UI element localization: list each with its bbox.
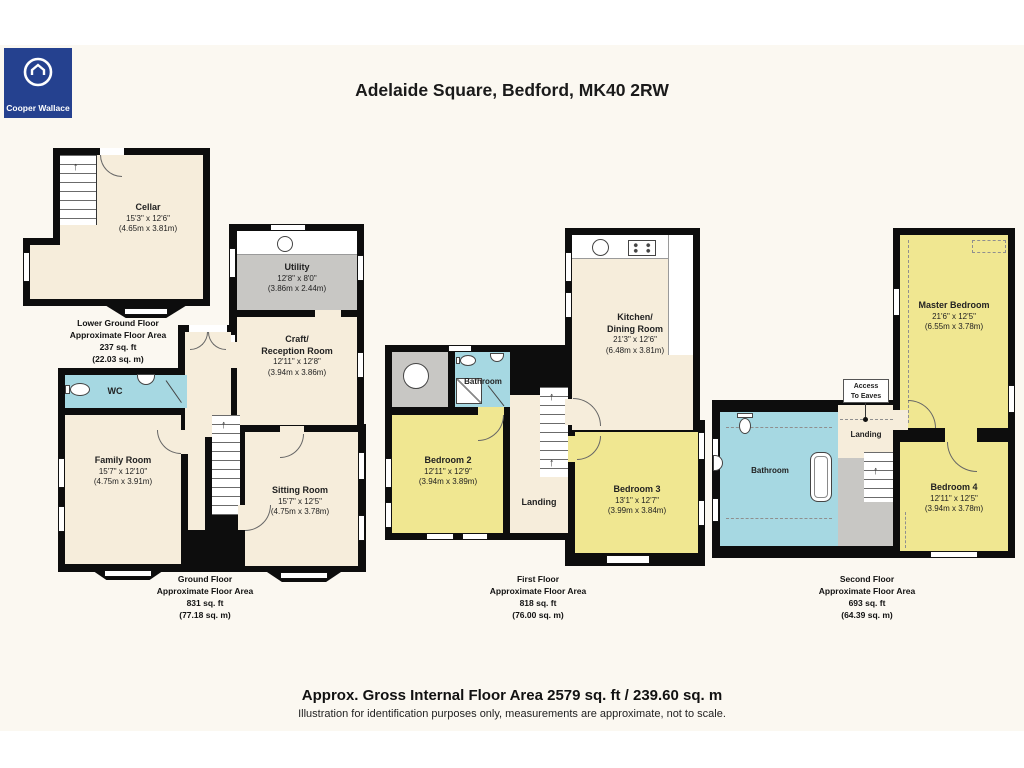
door-opening <box>945 428 977 442</box>
door-opening <box>229 342 237 368</box>
room-label-utility: Utility 12'8" x 8'0" (3.86m x 2.44m) <box>237 262 357 294</box>
room-label-family: Family Room 15'7" x 12'10" (4.75m x 3.91… <box>66 455 180 487</box>
door-opening <box>280 426 304 434</box>
window-icon <box>462 533 488 540</box>
toilet-cistern <box>65 385 70 394</box>
bathtub-icon <box>810 452 832 502</box>
window-icon <box>23 252 30 282</box>
door-opening <box>893 410 908 430</box>
window-icon <box>270 224 306 231</box>
door-opening <box>565 399 573 425</box>
room-label-bedroom-4: Bedroom 4 12'11" x 12'5" (3.94m x 3.78m) <box>898 482 1010 514</box>
disclaimer-text: Illustration for identification purposes… <box>0 708 1024 720</box>
door-opening <box>568 436 575 462</box>
access-to-eaves-label: Access To Eaves <box>843 379 889 403</box>
room-label-bedroom-2: Bedroom 2 12'11" x 12'9" (3.94m x 3.89m) <box>390 455 506 487</box>
window-icon <box>58 458 65 488</box>
room-label-master: Master Bedroom 21'6" x 12'5" (6.55m x 3.… <box>896 300 1012 332</box>
toilet-icon <box>70 383 90 396</box>
stairs-icon <box>864 452 893 502</box>
room-label-bedroom-3: Bedroom 3 13'1" x 12'7" (3.99m x 3.84m) <box>577 484 697 516</box>
stairs-arrow-icon: ↑ <box>221 420 227 431</box>
window-icon <box>1008 385 1015 413</box>
door-opening <box>181 430 188 454</box>
window-icon <box>124 308 168 315</box>
door-opening <box>315 310 341 317</box>
agency-logo-text: Cooper Wallace <box>4 103 72 113</box>
room-label-cellar: Cellar 15'3" x 12'6" (4.65m x 3.81m) <box>88 202 208 234</box>
room-label-wc: WC <box>95 386 135 398</box>
eaves-dashed-line <box>905 512 906 548</box>
room-label-landing-2: Landing <box>836 430 896 440</box>
access-point-dot <box>863 417 868 422</box>
floor-area-label-first: First Floor Approximate Floor Area 818 s… <box>468 574 608 622</box>
room-label-craft: Craft/ Reception Room 12'11" x 12'8" (3.… <box>237 334 357 378</box>
window-icon <box>357 352 364 378</box>
eaves-dashed-box <box>972 240 1006 253</box>
room-label-landing: Landing <box>508 497 570 509</box>
door-opening <box>100 148 124 155</box>
room-label-kitchen: Kitchen/ Dining Room 21'3" x 12'6" (6.48… <box>575 312 695 356</box>
page-title: Adelaide Square, Bedford, MK40 2RW <box>0 80 1024 101</box>
window-icon <box>58 506 65 532</box>
window-icon <box>357 255 364 281</box>
leader-line <box>865 403 866 417</box>
stairs-arrow-icon: ↑ <box>549 458 555 469</box>
water-tank-icon <box>403 363 429 389</box>
stairs-arrow-icon: ↑ <box>873 466 879 477</box>
window-icon <box>280 572 328 579</box>
floorplan-page: Cooper Wallace Adelaide Square, Bedford,… <box>0 0 1024 768</box>
kitchen-sink-icon <box>277 236 293 252</box>
toilet-cistern <box>456 357 460 364</box>
window-icon <box>565 252 572 282</box>
hob-icon <box>628 240 656 256</box>
floor-area-label-lower-ground: Lower Ground Floor Approximate Floor Are… <box>48 318 188 366</box>
window-icon <box>698 500 705 526</box>
stairs-arrow-icon: ↑ <box>73 162 79 173</box>
gross-area-summary: Approx. Gross Internal Floor Area 2579 s… <box>0 687 1024 704</box>
floor-area-label-second: Second Floor Approximate Floor Area 693 … <box>797 574 937 622</box>
room-label-sitting: Sitting Room 15'7" x 12'5" (4.75m x 3.78… <box>243 485 357 517</box>
window-icon <box>698 432 705 460</box>
utility-counter <box>237 231 357 255</box>
front-door-opening <box>189 325 227 332</box>
window-icon <box>930 551 978 558</box>
room-label-bathroom: Bathroom <box>455 377 511 387</box>
door-opening <box>478 407 504 415</box>
kitchen-sink-icon <box>592 239 609 256</box>
window-icon <box>712 498 719 522</box>
window-icon <box>358 515 365 541</box>
window-icon <box>229 248 236 278</box>
toilet-icon <box>460 355 476 366</box>
corridor <box>188 415 205 530</box>
window-icon <box>606 555 650 564</box>
room-label-bathroom-2: Bathroom <box>735 466 805 476</box>
toilet-icon <box>739 418 751 434</box>
window-icon <box>448 345 472 352</box>
window-icon <box>565 292 572 318</box>
window-icon <box>358 452 365 480</box>
window-icon <box>426 533 454 540</box>
window-icon <box>385 502 392 528</box>
floor-area-label-ground: Ground Floor Approximate Floor Area 831 … <box>135 574 275 622</box>
stairs-arrow-icon: ↑ <box>549 392 555 403</box>
eaves-dashed-line <box>726 518 832 519</box>
room-cellar-annex <box>30 245 64 299</box>
